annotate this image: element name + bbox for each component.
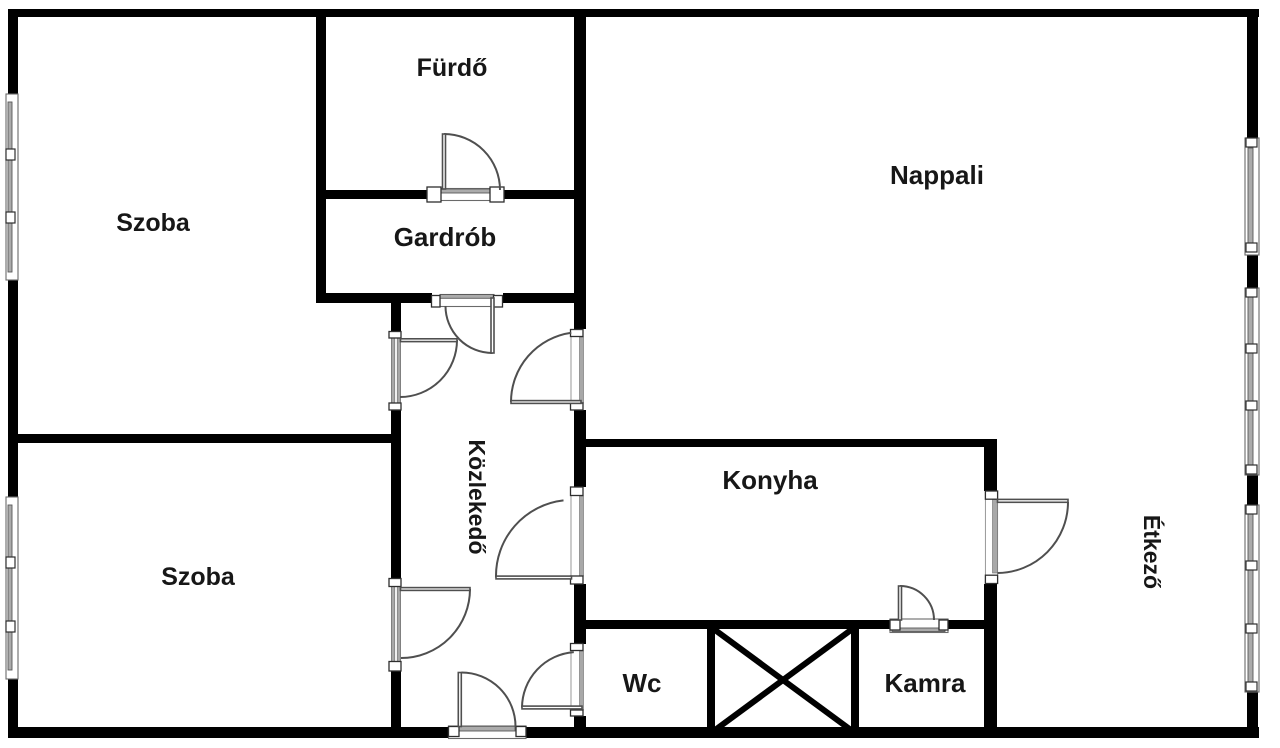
svg-text:Közlekedő: Közlekedő (464, 439, 490, 554)
svg-text:Kamra: Kamra (885, 668, 966, 698)
svg-text:Nappali: Nappali (890, 160, 984, 190)
svg-text:Wc: Wc (623, 668, 662, 698)
svg-text:Fürdő: Fürdő (417, 54, 488, 82)
svg-text:Étkező: Étkező (1139, 515, 1166, 589)
svg-text:Konyha: Konyha (722, 465, 818, 495)
svg-text:Gardrób: Gardrób (394, 222, 497, 252)
svg-text:Szoba: Szoba (161, 563, 236, 591)
svg-text:Szoba: Szoba (116, 209, 191, 237)
